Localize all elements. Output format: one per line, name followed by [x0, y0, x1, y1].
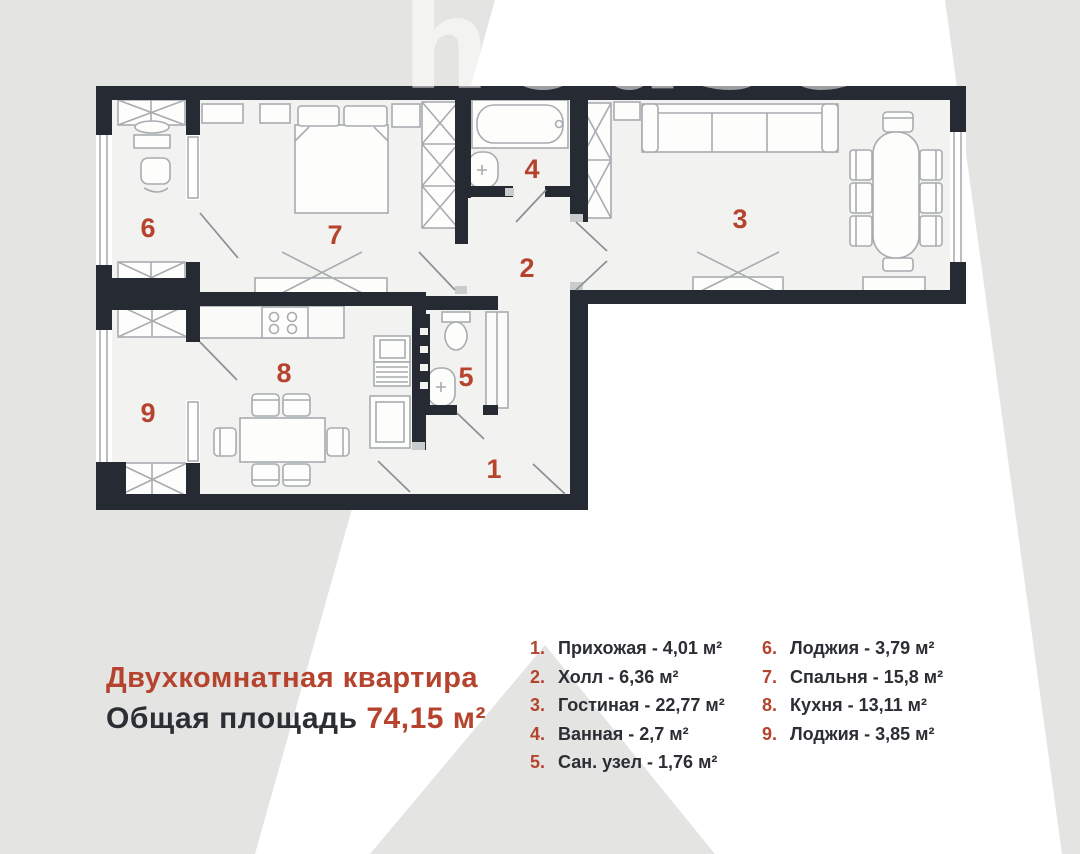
legend-text: Прихожая - 4,01 м² [558, 638, 722, 659]
room-label-8: 8 [276, 358, 291, 388]
legend-item-8: 8. Кухня - 13,11 м² [762, 695, 943, 724]
room-label-2: 2 [519, 253, 534, 283]
legend-num: 4. [530, 724, 550, 745]
legend-column-2: 6. Лоджия - 3,79 м² 7. Спальня - 15,8 м²… [762, 638, 943, 752]
room-label-1: 1 [486, 454, 501, 484]
legend-item-5: 5. Сан. узел - 1,76 м² [530, 752, 725, 781]
legend-column-1: 1. Прихожая - 4,01 м² 2. Холл - 6,36 м² … [530, 638, 725, 781]
floorplan-poster: 1 2 3 4 5 6 7 8 9 house Двухкомнатная кв… [0, 0, 1080, 854]
legend-item-4: 4. Ванная - 2,7 м² [530, 724, 725, 753]
total-area-label: Общая площадь [106, 702, 366, 735]
legend-text: Лоджия - 3,79 м² [790, 638, 934, 659]
legend-num: 7. [762, 667, 782, 688]
apartment-title: Двухкомнатная квартира [106, 662, 486, 695]
legend-text: Сан. узел - 1,76 м² [558, 752, 717, 773]
legend-item-6: 6. Лоджия - 3,79 м² [762, 638, 943, 667]
legend-num: 9. [762, 724, 782, 745]
legend-text: Спальня - 15,8 м² [790, 667, 943, 688]
legend-text: Гостиная - 22,77 м² [558, 695, 725, 716]
legend-item-3: 3. Гостиная - 22,77 м² [530, 695, 725, 724]
total-area-value: 74,15 м² [366, 702, 486, 735]
legend-text: Холл - 6,36 м² [558, 667, 679, 688]
title-block: Двухкомнатная квартира Общая площадь 74,… [106, 662, 486, 736]
legend-num: 3. [530, 695, 550, 716]
legend-item-1: 1. Прихожая - 4,01 м² [530, 638, 725, 667]
room-label-4: 4 [524, 154, 539, 184]
legend-num: 2. [530, 667, 550, 688]
legend-num: 8. [762, 695, 782, 716]
room-label-3: 3 [732, 204, 747, 234]
room-label-5: 5 [458, 362, 473, 392]
legend-item-9: 9. Лоджия - 3,85 м² [762, 724, 943, 753]
legend-num: 5. [530, 752, 550, 773]
legend-item-2: 2. Холл - 6,36 м² [530, 667, 725, 696]
legend-num: 6. [762, 638, 782, 659]
legend-text: Ванная - 2,7 м² [558, 724, 689, 745]
room-label-9: 9 [140, 398, 155, 428]
legend-num: 1. [530, 638, 550, 659]
total-area-line: Общая площадь 74,15 м² [106, 702, 486, 736]
room-label-6: 6 [140, 213, 155, 243]
room-label-7: 7 [327, 220, 342, 250]
legend-text: Лоджия - 3,85 м² [790, 724, 934, 745]
legend-item-7: 7. Спальня - 15,8 м² [762, 667, 943, 696]
legend-text: Кухня - 13,11 м² [790, 695, 927, 716]
